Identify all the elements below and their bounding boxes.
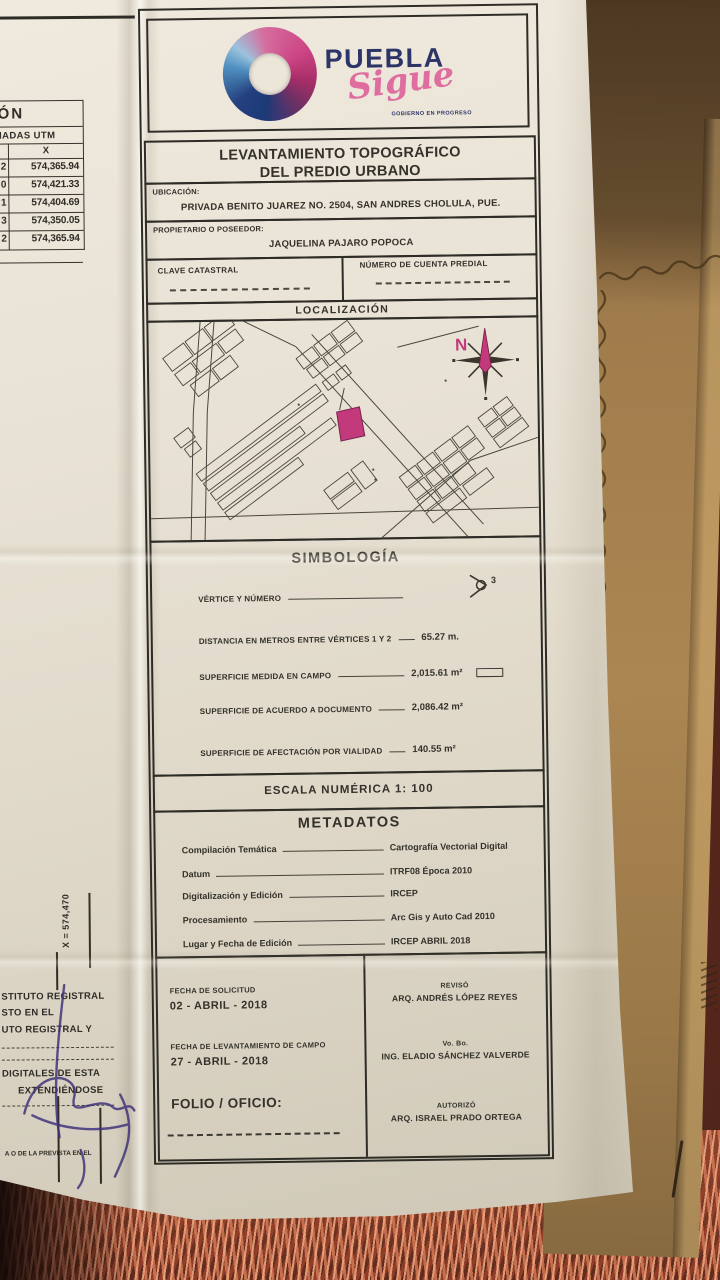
fecha-solicitud-value: 02 - ABRIL - 2018 bbox=[170, 999, 268, 1012]
signature-ink bbox=[1, 944, 153, 1195]
clave-catastral-label: CLAVE CATASTRAL bbox=[158, 265, 239, 275]
left-panel-top-border bbox=[0, 15, 135, 19]
north-label: N bbox=[455, 335, 467, 354]
table-row: 0 574,421.33 bbox=[0, 177, 83, 196]
table-stub-line bbox=[0, 262, 83, 264]
autorizo-role: AUTORIZÓ bbox=[369, 1101, 543, 1110]
propietario-value: JAQUELINA PAJARO POPOCA bbox=[147, 235, 535, 251]
logo-box: PUEBLA Sigue GOBIERNO EN PROGRESO bbox=[146, 13, 530, 132]
vobo-name: ING. ELADIO SÁNCHEZ VALVERDE bbox=[369, 1049, 543, 1061]
table-row: 2 574,365.94 bbox=[0, 231, 84, 250]
cuenta-predial-label: NÚMERO DE CUENTA PREDIAL bbox=[359, 259, 487, 270]
table-row: 1 574,404.69 bbox=[0, 195, 83, 214]
reviso-role: REVISÓ bbox=[368, 981, 542, 990]
autorizo-block: AUTORIZÓ ARQ. ISRAEL PRADO ORTEGA bbox=[369, 1101, 543, 1123]
table-subheader-partial: NADAS UTM bbox=[0, 127, 83, 145]
location-map: N bbox=[148, 317, 539, 540]
propietario-label: PROPIETARIO O POSEEDOR: bbox=[153, 224, 264, 235]
fecha-solicitud-label: FECHA DE SOLICITUD bbox=[170, 985, 256, 995]
folio-oficio-label: FOLIO / OFICIO: bbox=[171, 1095, 282, 1112]
autorizo-name: ARQ. ISRAEL PRADO ORTEGA bbox=[369, 1111, 543, 1123]
simbologia-row: DISTANCIA EN METROS ENTRE VÉRTICES 1 Y 2… bbox=[199, 625, 531, 646]
simbologia-row: SUPERFICIE DE ACUERDO A DOCUMENTO 2,086.… bbox=[200, 695, 532, 716]
footer-section: FECHA DE SOLICITUD 02 - ABRIL - 2018 FEC… bbox=[155, 951, 550, 1161]
reviso-name: ARQ. ANDRÉS LÓPEZ REYES bbox=[368, 991, 542, 1003]
simbologia-row: VÉRTICE Y NÚMERO 3 bbox=[198, 583, 530, 604]
localizacion-map-box: N bbox=[146, 315, 541, 542]
simbologia-title: SIMBOLOGÍA bbox=[152, 547, 540, 568]
vobo-role: Vo. Bo. bbox=[368, 1039, 542, 1048]
vertex-symbol-icon: 3 bbox=[466, 572, 502, 600]
cuenta-predial-cell: NÚMERO DE CUENTA PREDIAL bbox=[343, 255, 536, 300]
clave-catastral-cell: CLAVE CATASTRAL bbox=[147, 258, 344, 303]
ubicacion-label: UBICACIÓN: bbox=[152, 187, 199, 197]
catastral-row: CLAVE CATASTRAL NÚMERO DE CUENTA PREDIAL bbox=[145, 253, 538, 304]
puebla-logo-ring-icon bbox=[222, 26, 317, 121]
logo-tagline: GOBIERNO EN PROGRESO bbox=[391, 110, 472, 117]
metadatos-section: METADATOS Compilación Temática Cartograf… bbox=[153, 805, 547, 958]
grid-coordinate-label: X = 574,470 bbox=[60, 872, 71, 948]
area-swatch-icon bbox=[476, 668, 503, 677]
north-arrow-icon: N bbox=[452, 328, 520, 401]
survey-sheet-panel: PUEBLA Sigue GOBIERNO EN PROGRESO LEVANT… bbox=[138, 3, 554, 1164]
reviso-block: REVISÓ ARQ. ANDRÉS LÓPEZ REYES bbox=[368, 981, 542, 1003]
subject-parcel bbox=[337, 407, 365, 441]
left-folded-panel: ÓN NADAS UTM X 2 574,365.94 0 574,421.33… bbox=[0, 0, 155, 1231]
table-row: 2 574,365.94 bbox=[0, 159, 83, 178]
metadatos-row: Lugar y Fecha de Edición IRCEP ABRIL 201… bbox=[183, 931, 531, 949]
table-row: 3 574,350.05 bbox=[0, 213, 84, 232]
metadatos-row: Procesamiento Arc Gis y Auto Cad 2010 bbox=[183, 907, 531, 925]
folio-blank-line bbox=[168, 1132, 340, 1136]
paper-sheet: ÓN NADAS UTM X 2 574,365.94 0 574,421.33… bbox=[0, 0, 646, 1226]
table-header-partial: ÓN bbox=[0, 101, 83, 128]
metadatos-row: Compilación Temática Cartografía Vectori… bbox=[182, 837, 530, 855]
cuenta-predial-blank bbox=[376, 281, 510, 285]
utm-coordinates-table: ÓN NADAS UTM X 2 574,365.94 0 574,421.33… bbox=[0, 100, 85, 251]
metadatos-title: METADATOS bbox=[155, 812, 543, 833]
simbologia-row: SUPERFICIE DE AFECTACIÓN POR VIALIDAD 14… bbox=[200, 737, 532, 758]
ubicacion-value: PRIVADA BENITO JUAREZ NO. 2504, SAN ANDR… bbox=[147, 197, 535, 213]
column-header-x: X bbox=[9, 144, 83, 159]
fecha-levantamiento-value: 27 - ABRIL - 2018 bbox=[171, 1055, 269, 1068]
clave-catastral-blank bbox=[170, 287, 310, 291]
fecha-levantamiento-label: FECHA DE LEVANTAMIENTO DE CAMPO bbox=[170, 1040, 325, 1051]
metadatos-row: Digitalización y Edición IRCEP bbox=[182, 883, 530, 901]
pen-scribble-marks bbox=[701, 962, 717, 1010]
table-column-header-row: X bbox=[0, 144, 83, 160]
vertex-number: 3 bbox=[491, 575, 496, 585]
simbologia-section: SIMBOLOGÍA VÉRTICE Y NÚMERO 3 DISTANCIA … bbox=[149, 535, 544, 776]
metadatos-row: Datum ITRF08 Época 2010 bbox=[182, 861, 530, 879]
vobo-block: Vo. Bo. ING. ELADIO SÁNCHEZ VALVERDE bbox=[368, 1039, 542, 1061]
simbologia-row: SUPERFICIE MEDIDA EN CAMPO 2,015.61 m² bbox=[199, 661, 531, 682]
